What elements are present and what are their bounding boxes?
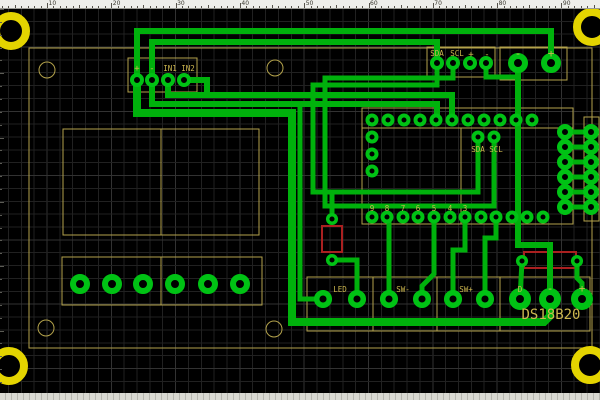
ruler-tick [0, 279, 2, 280]
ruler-tick [336, 5, 337, 8]
i2c-connector-pad[interactable] [432, 58, 442, 68]
silk-hole-marker [38, 320, 54, 336]
ruler-tick [356, 6, 357, 8]
resistor-pad[interactable] [573, 257, 582, 266]
ruler-tick [510, 6, 511, 8]
ruler-number: 70 [434, 0, 442, 7]
module-pad[interactable] [384, 116, 393, 125]
silk-label: - [515, 47, 522, 60]
ruler-tick [0, 189, 2, 190]
module-pad[interactable] [512, 116, 521, 125]
module-pad[interactable] [480, 116, 489, 125]
module-pad[interactable] [430, 213, 439, 222]
silk-label: - [484, 50, 489, 60]
ruler-tick [0, 48, 2, 49]
silk-label: 5 [432, 204, 437, 213]
ruler-tick [221, 6, 222, 8]
ruler-tick [471, 6, 472, 8]
ruler-tick [0, 86, 2, 87]
module-pad[interactable] [490, 133, 499, 142]
ruler-tick [21, 6, 22, 8]
ruler-number: 30 [177, 0, 185, 7]
ruler-tick [574, 6, 575, 8]
terminal-pad[interactable] [73, 277, 87, 291]
header-pad[interactable] [586, 187, 597, 198]
ruler-tick [484, 6, 485, 8]
ruler-tick [381, 6, 382, 8]
ruler-tick [581, 6, 582, 8]
silk-hole-marker [266, 321, 282, 337]
ruler-tick [420, 6, 421, 8]
ruler-tick [208, 5, 209, 8]
ruler-tick [555, 6, 556, 8]
silk-label: - [547, 282, 554, 295]
silk-label: D [518, 285, 523, 294]
module-pad[interactable] [400, 116, 409, 125]
resistor-pad[interactable] [328, 256, 337, 265]
ruler-tick [0, 73, 4, 74]
ruler-tick [131, 6, 132, 8]
ruler-tick [124, 6, 125, 8]
silk-label: - [149, 64, 154, 74]
module-pad[interactable] [474, 133, 483, 142]
terminal-pad[interactable] [233, 277, 247, 291]
silk-label: 8 [385, 204, 390, 213]
ruler-tick [478, 6, 479, 8]
ruler-tick [459, 6, 460, 8]
module-pad[interactable] [477, 213, 486, 222]
ruler-tick [587, 6, 588, 8]
ruler-tick [414, 6, 415, 8]
in-connector-pad[interactable] [132, 75, 142, 85]
ruler-number: 50 [306, 0, 314, 7]
module-pad[interactable] [416, 116, 425, 125]
i2c-connector-pad[interactable] [448, 58, 458, 68]
silk-label: 9 [370, 204, 375, 213]
ruler-tick [15, 5, 16, 8]
silk-label: DS18B20 [521, 307, 580, 323]
ruler-tick [330, 6, 331, 8]
silk-label: 3 [463, 204, 468, 213]
ruler-tick [0, 9, 4, 10]
silk-label: 4 [448, 204, 453, 213]
header-pad[interactable] [586, 202, 597, 213]
ruler-tick [0, 382, 2, 383]
module-pad[interactable] [461, 213, 470, 222]
ruler-tick [401, 5, 402, 8]
module-pad[interactable] [528, 116, 537, 125]
ruler-tick [2, 6, 3, 8]
terminal-pad[interactable] [105, 277, 119, 291]
ruler-tick [491, 6, 492, 8]
ruler-tick [285, 6, 286, 8]
pcb-editor-window: +-IN1IN2SDASCL+--+SDASCL9876543LEDSW-SW+… [0, 0, 600, 400]
resistor-pad[interactable] [518, 257, 527, 266]
module-pad[interactable] [446, 213, 455, 222]
ruler-tick [529, 5, 530, 8]
silk-label: SCL [489, 145, 503, 154]
module-pad[interactable] [368, 133, 377, 142]
ruler-tick [0, 150, 2, 151]
ruler-tick [8, 6, 9, 8]
module-pad[interactable] [496, 116, 505, 125]
silk-label: 6 [416, 204, 421, 213]
ruler-tick [0, 331, 4, 332]
ruler-number: 20 [113, 0, 121, 7]
ruler-tick [0, 60, 2, 61]
header-pad[interactable] [586, 157, 597, 168]
ruler-tick [349, 6, 350, 8]
ruler-tick [214, 6, 215, 8]
ruler-number: 40 [241, 0, 249, 7]
ruler-tick [86, 6, 87, 8]
silk-label: + [134, 64, 140, 74]
ruler-tick [317, 6, 318, 8]
ruler-tick [343, 6, 344, 8]
ruler-tick [407, 6, 408, 8]
ruler-tick [41, 6, 42, 8]
module-pad[interactable] [399, 213, 408, 222]
bottom-connector-pad[interactable] [447, 293, 460, 306]
ruler-tick [272, 5, 273, 8]
bottom-connector-pad[interactable] [416, 293, 429, 306]
ruler-tick [73, 6, 74, 8]
ruler-tick [34, 6, 35, 8]
horizontal-scrollbar[interactable] [0, 393, 600, 400]
ruler-tick [163, 6, 164, 8]
bottom-connector-pad[interactable] [383, 293, 396, 306]
ruler-tick [66, 6, 67, 8]
ruler-tick [143, 5, 144, 8]
ruler-tick [195, 6, 196, 8]
ruler-tick [0, 343, 2, 344]
header-pad[interactable] [586, 172, 597, 183]
silk-label: LED [333, 285, 347, 294]
header-pad[interactable] [560, 172, 571, 183]
module-pad[interactable] [492, 213, 501, 222]
ruler-tick [0, 240, 2, 241]
resistor-pad[interactable] [328, 215, 337, 224]
ruler-tick [446, 6, 447, 8]
header-pad[interactable] [560, 157, 571, 168]
ruler-tick [227, 6, 228, 8]
ruler-tick [388, 6, 389, 8]
ruler-tick [137, 6, 138, 8]
ruler-tick [28, 6, 29, 8]
ruler-tick [79, 5, 80, 8]
ruler-tick [0, 318, 2, 319]
header-pad[interactable] [586, 142, 597, 153]
bottom-connector-pad[interactable] [351, 293, 364, 306]
module-pad[interactable] [383, 213, 392, 222]
module-pad[interactable] [414, 213, 423, 222]
module-pad[interactable] [368, 213, 377, 222]
ruler-tick [0, 305, 2, 306]
copper-trace [485, 217, 496, 299]
ruler-tick [0, 292, 2, 293]
ruler-tick [0, 35, 2, 36]
silk-label: SW- [396, 285, 410, 294]
silk-label: 7 [401, 204, 406, 213]
header-pad[interactable] [560, 142, 571, 153]
ruler-tick [549, 6, 550, 8]
terminal-pad[interactable] [201, 277, 215, 291]
ruler-tick [169, 6, 170, 8]
pcb-canvas[interactable]: +-IN1IN2SDASCL+--+SDASCL9876543LEDSW-SW+… [0, 0, 600, 400]
module-pad[interactable] [523, 213, 532, 222]
ruler-tick [0, 215, 2, 216]
ruler-tick [298, 6, 299, 8]
header-pad[interactable] [560, 127, 571, 138]
ruler-tick [266, 6, 267, 8]
ruler-tick [0, 112, 2, 113]
ruler-tick [0, 125, 2, 126]
ruler-tick [105, 6, 106, 8]
ruler-tick [452, 6, 453, 8]
copper-trace [422, 217, 434, 299]
mounting-hole [575, 350, 600, 380]
silk-label: SDA [430, 49, 444, 58]
ruler-tick [201, 6, 202, 8]
ruler-tick [465, 5, 466, 8]
ruler-tick [0, 163, 2, 164]
header-pad[interactable] [560, 202, 571, 213]
ruler-tick [0, 202, 4, 203]
silk-label: + [468, 50, 474, 60]
ruler-number: 60 [370, 0, 378, 7]
ruler-tick [542, 6, 543, 8]
ruler-tick [156, 6, 157, 8]
ruler-tick [278, 6, 279, 8]
bottom-connector-pad[interactable] [317, 293, 330, 306]
ruler-tick [253, 6, 254, 8]
ruler-tick [594, 5, 595, 8]
in-connector-pad[interactable] [163, 75, 173, 85]
ruler-tick [233, 6, 234, 8]
ruler-number: 80 [499, 0, 507, 7]
ruler-tick [98, 6, 99, 8]
silk-label: SW+ [459, 285, 473, 294]
top-ruler: 102030405060708090 [0, 0, 600, 9]
silk-hole-marker [267, 60, 283, 76]
ruler-tick [394, 6, 395, 8]
terminal-pad[interactable] [168, 277, 182, 291]
module-pad[interactable] [368, 150, 377, 159]
ruler-number: 10 [49, 0, 57, 7]
ruler-tick [426, 6, 427, 8]
silk-label: IN2 [181, 64, 195, 73]
ruler-tick [523, 6, 524, 8]
silk-label: SDA [471, 145, 485, 154]
in-connector-pad[interactable] [179, 75, 189, 85]
module-pad[interactable] [464, 116, 473, 125]
ruler-tick [362, 6, 363, 8]
ruler-tick [516, 6, 517, 8]
ruler-tick [0, 356, 2, 357]
module-pad[interactable] [432, 116, 441, 125]
ruler-tick [0, 266, 4, 267]
ruler-tick [0, 22, 2, 23]
module-pad[interactable] [539, 213, 548, 222]
ruler-tick [291, 6, 292, 8]
silk-label: + [579, 282, 586, 295]
ruler-tick [323, 6, 324, 8]
module-pad[interactable] [448, 116, 457, 125]
ruler-tick [0, 99, 2, 100]
left-ruler [0, 9, 5, 393]
module-pad[interactable] [508, 213, 517, 222]
silk-label: + [548, 47, 555, 60]
ruler-tick [0, 369, 2, 370]
bottom-connector-pad[interactable] [479, 293, 492, 306]
silk-label: SCL [450, 49, 464, 58]
ruler-tick [150, 6, 151, 8]
module-pad[interactable] [368, 167, 377, 176]
ruler-tick [259, 6, 260, 8]
ruler-tick [60, 6, 61, 8]
module-pad[interactable] [368, 116, 377, 125]
header-pad[interactable] [586, 127, 597, 138]
ruler-tick [0, 138, 4, 139]
ruler-tick [0, 176, 2, 177]
ruler-tick [92, 6, 93, 8]
ruler-tick [188, 6, 189, 8]
silk-label: IN1 [163, 64, 177, 73]
ruler-tick [0, 253, 2, 254]
in-connector-pad[interactable] [147, 75, 157, 85]
header-pad[interactable] [560, 187, 571, 198]
mounting-hole [577, 12, 600, 42]
terminal-pad[interactable] [136, 277, 150, 291]
ruler-number: 90 [563, 0, 571, 7]
ruler-tick [0, 228, 2, 229]
ruler-tick [536, 6, 537, 8]
resistor-outline [322, 226, 342, 252]
